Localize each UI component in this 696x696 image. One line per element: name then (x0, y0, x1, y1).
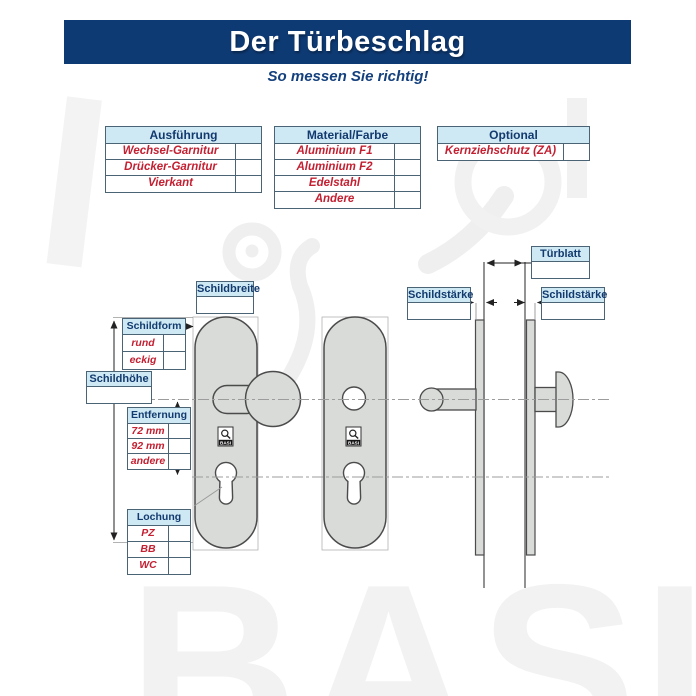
label-text: Schildhöhe (86, 371, 152, 387)
table-optional: Optional Kernziehschutz (ZA) (437, 126, 590, 161)
checkbox-cell[interactable] (394, 176, 420, 191)
checkbox-cell[interactable] (235, 144, 261, 159)
option-label: 92 mm (128, 439, 168, 453)
table-row: Edelstahl (275, 176, 420, 192)
page: BASI BASI (0, 0, 696, 696)
label-text: Schildstärke (407, 287, 471, 303)
table-row: Drücker-Garnitur (106, 160, 261, 176)
table-entfernung: Entfernung 72 mm 92 mm andere (127, 407, 191, 470)
label-schildhoehe: Schildhöhe (86, 371, 152, 404)
option-label: Aluminium F1 (275, 144, 394, 159)
checkbox-cell[interactable] (163, 335, 185, 351)
checkbox-cell[interactable] (168, 439, 190, 453)
table-row: Kernziehschutz (ZA) (438, 144, 589, 160)
option-label: Edelstahl (275, 176, 394, 191)
option-label: Wechsel-Garnitur (106, 144, 235, 159)
label-text: Türblatt (531, 246, 590, 262)
basi-plate-logo (218, 427, 233, 446)
table-header: Schildform (123, 319, 185, 335)
basi-plate-logo (346, 427, 361, 446)
option-label: Aluminium F2 (275, 160, 394, 175)
checkbox-cell[interactable] (235, 160, 261, 175)
label-schildbreite: Schildbreite (196, 281, 254, 314)
table-row: Aluminium F1 (275, 144, 420, 160)
table-row: Vierkant (106, 176, 261, 192)
option-label: BB (128, 542, 168, 557)
table-row: WC (128, 558, 190, 574)
option-label: rund (123, 335, 163, 351)
checkbox-cell[interactable] (168, 424, 190, 438)
table-row: 72 mm (128, 424, 190, 439)
option-label: andere (128, 454, 168, 469)
checkbox-cell[interactable] (394, 160, 420, 175)
table-row: andere (128, 454, 190, 469)
table-material-farbe: Material/Farbe Aluminium F1 Aluminium F2… (274, 126, 421, 209)
option-label: Vierkant (106, 176, 235, 192)
option-label: Andere (275, 192, 394, 208)
label-text: Schildbreite (196, 281, 254, 297)
table-header: Material/Farbe (275, 127, 420, 144)
checkbox-cell[interactable] (168, 454, 190, 469)
table-lochung: Lochung PZ BB WC (127, 509, 191, 575)
table-ausfuehrung: Ausführung Wechsel-Garnitur Drücker-Garn… (105, 126, 262, 193)
checkbox-cell[interactable] (563, 144, 589, 160)
checkbox-cell[interactable] (163, 352, 185, 369)
table-row: BB (128, 542, 190, 558)
label-schildstaerke-right: Schildstärke (541, 287, 605, 320)
table-row: Andere (275, 192, 420, 208)
table-schildform: Schildform rund eckig (122, 318, 186, 370)
measure-input[interactable] (531, 262, 590, 279)
checkbox-cell[interactable] (168, 558, 190, 574)
measure-input[interactable] (86, 387, 152, 404)
table-row: rund (123, 335, 185, 352)
plate-side-left (476, 320, 485, 555)
option-label: WC (128, 558, 168, 574)
option-label: Drücker-Garnitur (106, 160, 235, 175)
option-label: eckig (123, 352, 163, 369)
table-header: Ausführung (106, 127, 261, 144)
spindle-hole (343, 387, 366, 410)
measure-input[interactable] (407, 303, 471, 320)
label-schildstaerke-left: Schildstärke (407, 287, 471, 320)
door-fitting-diagram: BASI BASI (0, 0, 696, 696)
option-label: 72 mm (128, 424, 168, 438)
table-row: eckig (123, 352, 185, 369)
checkbox-cell[interactable] (394, 144, 420, 159)
table-row: Wechsel-Garnitur (106, 144, 261, 160)
watermark-text: BASI (128, 535, 696, 696)
checkbox-cell[interactable] (235, 176, 261, 192)
table-header: Optional (438, 127, 589, 144)
plate-side-right (527, 320, 536, 555)
option-label: PZ (128, 526, 168, 541)
checkbox-cell[interactable] (168, 526, 190, 541)
label-text: Schildstärke (541, 287, 605, 303)
table-row: 92 mm (128, 439, 190, 454)
door-plate-front-knob (195, 317, 301, 548)
checkbox-cell[interactable] (168, 542, 190, 557)
option-label: Kernziehschutz (ZA) (438, 144, 563, 160)
table-row: PZ (128, 526, 190, 542)
table-row: Aluminium F2 (275, 160, 420, 176)
label-tuerblatt: Türblatt (531, 246, 590, 279)
table-header: Entfernung (128, 408, 190, 424)
table-header: Lochung (128, 510, 190, 526)
measure-input[interactable] (196, 297, 254, 314)
measure-input[interactable] (541, 303, 605, 320)
checkbox-cell[interactable] (394, 192, 420, 208)
